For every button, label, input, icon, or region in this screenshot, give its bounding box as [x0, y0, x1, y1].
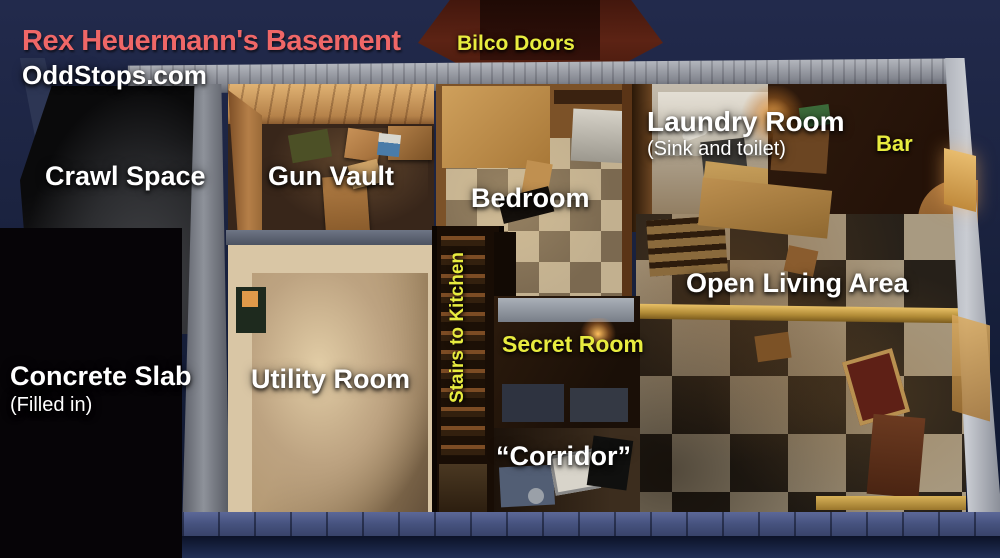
label-bedroom: Bedroom: [471, 183, 590, 214]
gun-vault-room: [228, 84, 434, 232]
box: [754, 332, 791, 362]
website-credit: OddStops.com: [22, 60, 207, 91]
basement-floorplan-render: Rex Heuermann's Basement OddStops.com Bi…: [0, 0, 1000, 558]
label-crawl-space: Crawl Space: [45, 161, 206, 192]
label-bilco-doors: Bilco Doors: [457, 32, 575, 56]
crate: [344, 128, 382, 162]
cabinet: [570, 388, 628, 422]
label-corridor: “Corridor”: [496, 441, 631, 472]
label-bar: Bar: [876, 131, 913, 157]
label-utility-room: Utility Room: [251, 364, 410, 395]
label-secret-room: Secret Room: [502, 331, 644, 358]
page-title: Rex Heuermann's Basement: [22, 25, 401, 58]
lit-window: [944, 148, 976, 212]
stair-landing: [439, 464, 487, 516]
utility-floor: [252, 273, 428, 519]
bottom-foundation-wall: [182, 512, 1000, 536]
open-living-area-floor: [636, 214, 966, 516]
exterior-ground: [182, 536, 1000, 558]
concrete-slab-region: [0, 228, 182, 558]
label-open-living-area: Open Living Area: [686, 268, 909, 299]
armchair: [867, 414, 926, 498]
label-laundry-note: (Sink and toilet): [647, 138, 786, 161]
label-gun-vault: Gun Vault: [268, 161, 394, 192]
doorway: [494, 232, 516, 304]
label-stairs-to-kitchen: Stairs to Kitchen: [447, 252, 469, 403]
plywood-panel: [442, 86, 550, 168]
secret-room: [494, 296, 640, 428]
label-laundry-room: Laundry Room: [647, 106, 845, 138]
wall-shelf: [554, 90, 630, 104]
brass-beam: [816, 496, 966, 510]
disc: [528, 488, 544, 504]
label-concrete-slab: Concrete Slab: [10, 361, 192, 392]
toolbox: [242, 291, 258, 307]
wood-wall: [622, 84, 632, 312]
lit-window: [952, 315, 990, 422]
label-concrete-slab-note: (Filled in): [10, 394, 92, 417]
cabinet: [502, 384, 564, 422]
dividing-wall: [226, 230, 438, 245]
box: [377, 133, 401, 157]
